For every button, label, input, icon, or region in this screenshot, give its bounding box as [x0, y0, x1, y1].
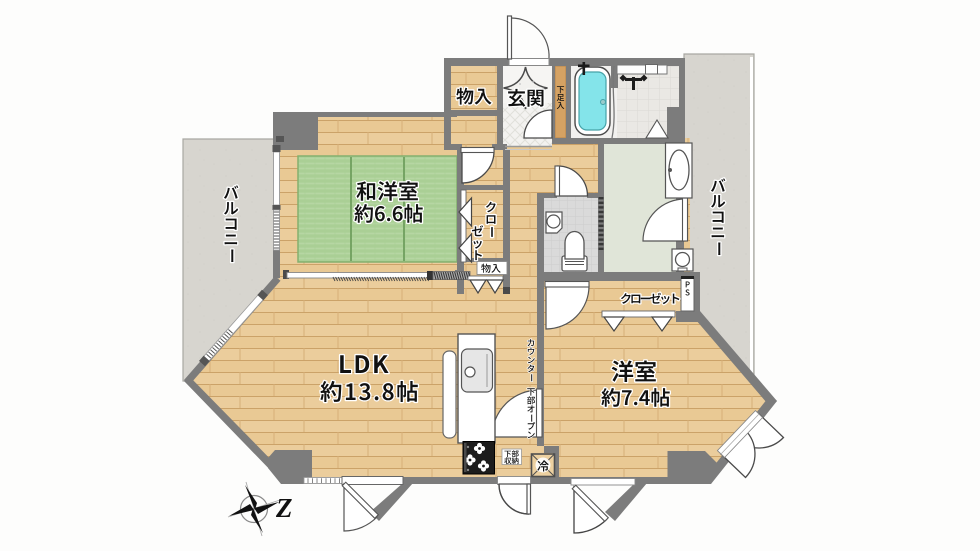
svg-text:Z: Z — [275, 493, 293, 523]
